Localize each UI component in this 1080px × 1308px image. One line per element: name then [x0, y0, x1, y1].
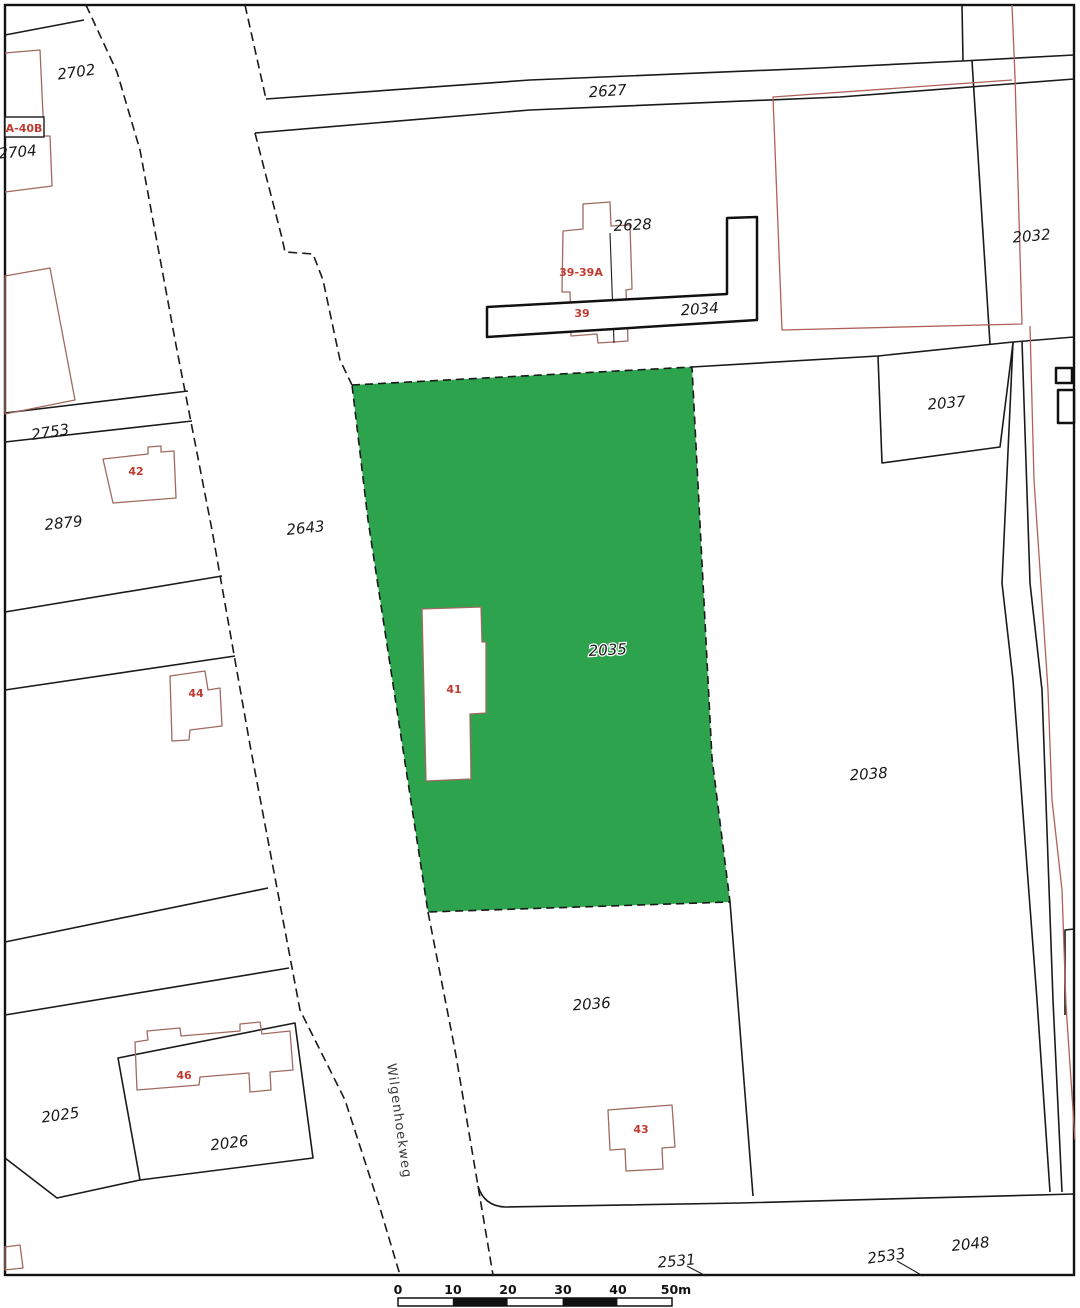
leader-2533 [897, 1261, 923, 1276]
building-bottom-left-fragment [5, 1245, 23, 1270]
parcel-label-2038: 2038 [849, 764, 888, 785]
boundary-2032-top-stub [962, 5, 963, 61]
house-label-a40b: A-40B [6, 122, 43, 135]
selected-parcel-2035[interactable] [352, 367, 730, 912]
house-label-44: 44 [188, 687, 204, 700]
strip-2627-top [266, 55, 1074, 99]
boundary-main-horizontal [692, 337, 1074, 367]
boundary-2753-top [5, 391, 188, 413]
parcel-label-2032: 2032 [1012, 225, 1052, 246]
building-43 [608, 1105, 675, 1171]
boundary-strip-44-top [5, 656, 235, 690]
parcel-label-2037: 2037 [927, 392, 967, 413]
house-label-39: 39 [574, 307, 589, 320]
parcel-label-2628: 2628 [613, 215, 652, 235]
house-label-46: 46 [176, 1069, 192, 1082]
scale-tick-10: 10 [444, 1282, 462, 1297]
parcel-label-2036: 2036 [572, 994, 611, 1015]
parcel-label-2879: 2879 [44, 512, 84, 534]
cadastral-map: 2702 2704 2627 2628 2034 2032 2753 2879 … [0, 0, 1080, 1308]
building-46 [135, 1022, 293, 1092]
boundary-2025-top [5, 968, 289, 1015]
building-44 [170, 671, 222, 741]
scale-tick-20: 20 [499, 1282, 517, 1297]
house-label-41: 41 [446, 683, 461, 696]
building-right-edge-small [1056, 368, 1072, 383]
parcel-label-2034: 2034 [680, 299, 719, 320]
parcel-label-2627: 2627 [588, 81, 628, 102]
parcel-label-2026: 2026 [209, 1132, 249, 1155]
parcel-label-2643: 2643 [286, 517, 326, 539]
boundary-bottom-left [5, 1158, 140, 1198]
map-canvas: 2702 2704 2627 2628 2034 2032 2753 2879 … [0, 0, 1080, 1308]
red-boundary-right-strip [1030, 326, 1075, 1140]
boundary-strip-44-bottom [5, 888, 268, 942]
scale-tick-50m: 50m [661, 1282, 691, 1297]
parcel-2026-outline [118, 1023, 313, 1180]
scale-segment-10-20 [453, 1298, 508, 1306]
scale-bar: 0 10 20 30 40 50m [394, 1282, 692, 1306]
boundary-2879-bottom [5, 576, 222, 612]
parcel-label-2025: 2025 [40, 1103, 80, 1126]
road-right-edge [255, 133, 352, 385]
scale-tick-40: 40 [609, 1282, 627, 1297]
road-curve-into-bottom-road [478, 1186, 1074, 1207]
strip-2627-bottom [255, 79, 1074, 133]
scale-segment-30-40 [563, 1298, 618, 1306]
parcel-label-2533: 2533 [866, 1244, 906, 1267]
scale-bar-outline [398, 1298, 672, 1306]
road-left-edge [86, 5, 400, 1275]
parcel-label-2531: 2531 [657, 1250, 697, 1271]
building-2034-l-shape [487, 217, 757, 337]
building-right-edge-large [1058, 390, 1074, 423]
building-left-edge [5, 268, 75, 414]
road-right-edge-lower [428, 912, 493, 1275]
red-boundary-2032-block [773, 5, 1022, 330]
boundary-2036-2038 [730, 902, 753, 1196]
road-right-edge-upper [245, 5, 266, 99]
house-label-43: 43 [633, 1123, 648, 1136]
parcel-label-2753: 2753 [30, 420, 71, 444]
parcel-label-2702: 2702 [56, 60, 96, 83]
scale-tick-0: 0 [394, 1282, 403, 1297]
parcel-label-2048: 2048 [951, 1233, 991, 1255]
house-label-39-39a: 39-39A [559, 266, 603, 279]
parcel-label-2704: 2704 [0, 141, 37, 162]
parcel-label-2035: 2035 [588, 640, 627, 660]
street-name-label: Wilgenhoekweg [383, 1062, 414, 1179]
scale-tick-30: 30 [554, 1282, 572, 1297]
boundary-2702 [5, 20, 84, 35]
boundary-2032-left [972, 61, 990, 344]
house-label-42: 42 [128, 465, 143, 478]
